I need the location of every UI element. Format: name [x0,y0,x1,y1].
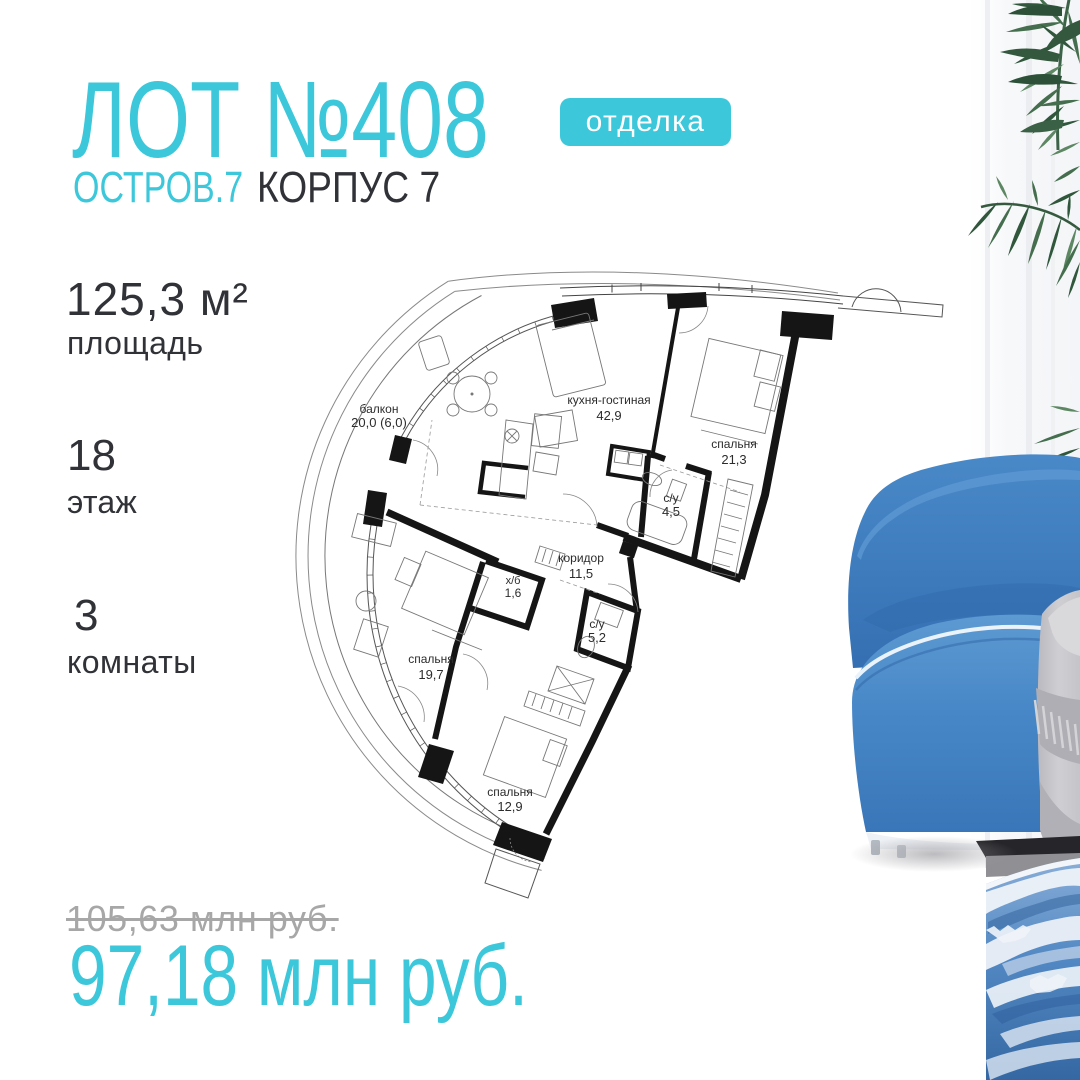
svg-text:1,6: 1,6 [505,586,522,600]
svg-text:коридор: коридор [558,551,604,565]
svg-text:20,0 (6,0): 20,0 (6,0) [351,415,407,430]
svg-text:4,5: 4,5 [662,504,680,519]
svg-text:спальня: спальня [487,785,533,799]
svg-text:11,5: 11,5 [569,566,593,581]
svg-text:с/у: с/у [663,491,678,505]
svg-text:с/у: с/у [589,617,604,631]
svg-text:кухня-гостиная: кухня-гостиная [567,393,650,407]
svg-text:42,9: 42,9 [596,408,621,423]
svg-text:спальня: спальня [711,437,757,451]
svg-text:12,9: 12,9 [497,799,522,814]
svg-text:спальня: спальня [408,652,454,666]
svg-text:19,7: 19,7 [418,667,443,682]
svg-text:21,3: 21,3 [721,452,746,467]
svg-text:балкон: балкон [360,402,399,416]
svg-text:5,2: 5,2 [588,630,606,645]
